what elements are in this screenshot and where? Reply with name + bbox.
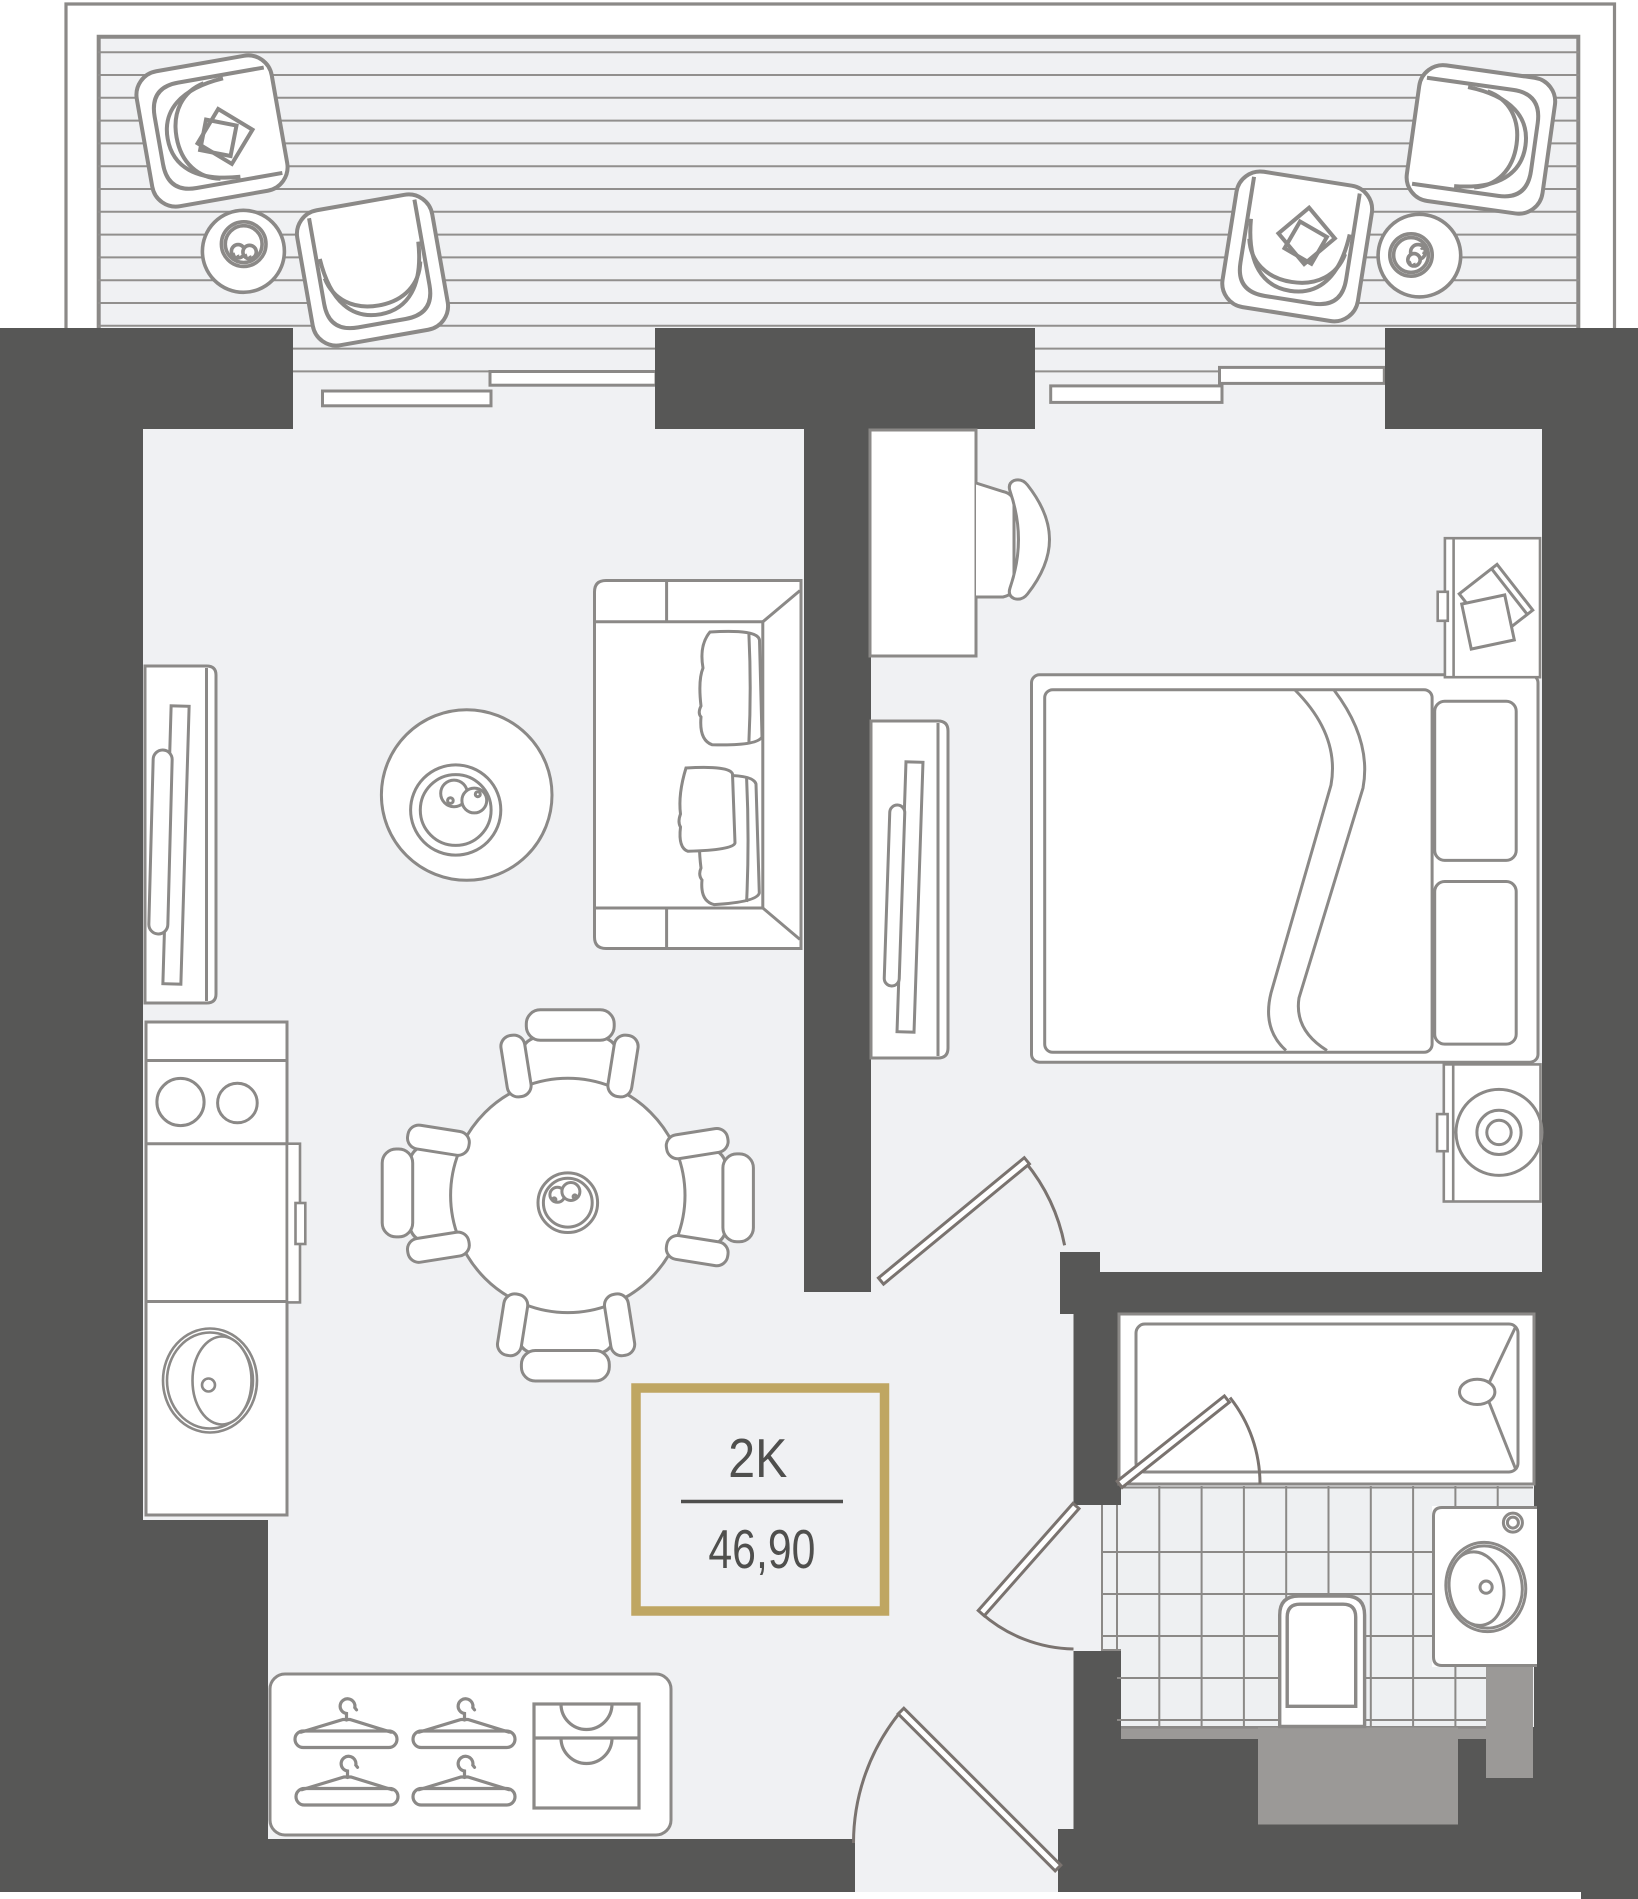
svg-text:46,90: 46,90 [708,1518,815,1580]
svg-text:2K: 2K [728,1427,787,1489]
